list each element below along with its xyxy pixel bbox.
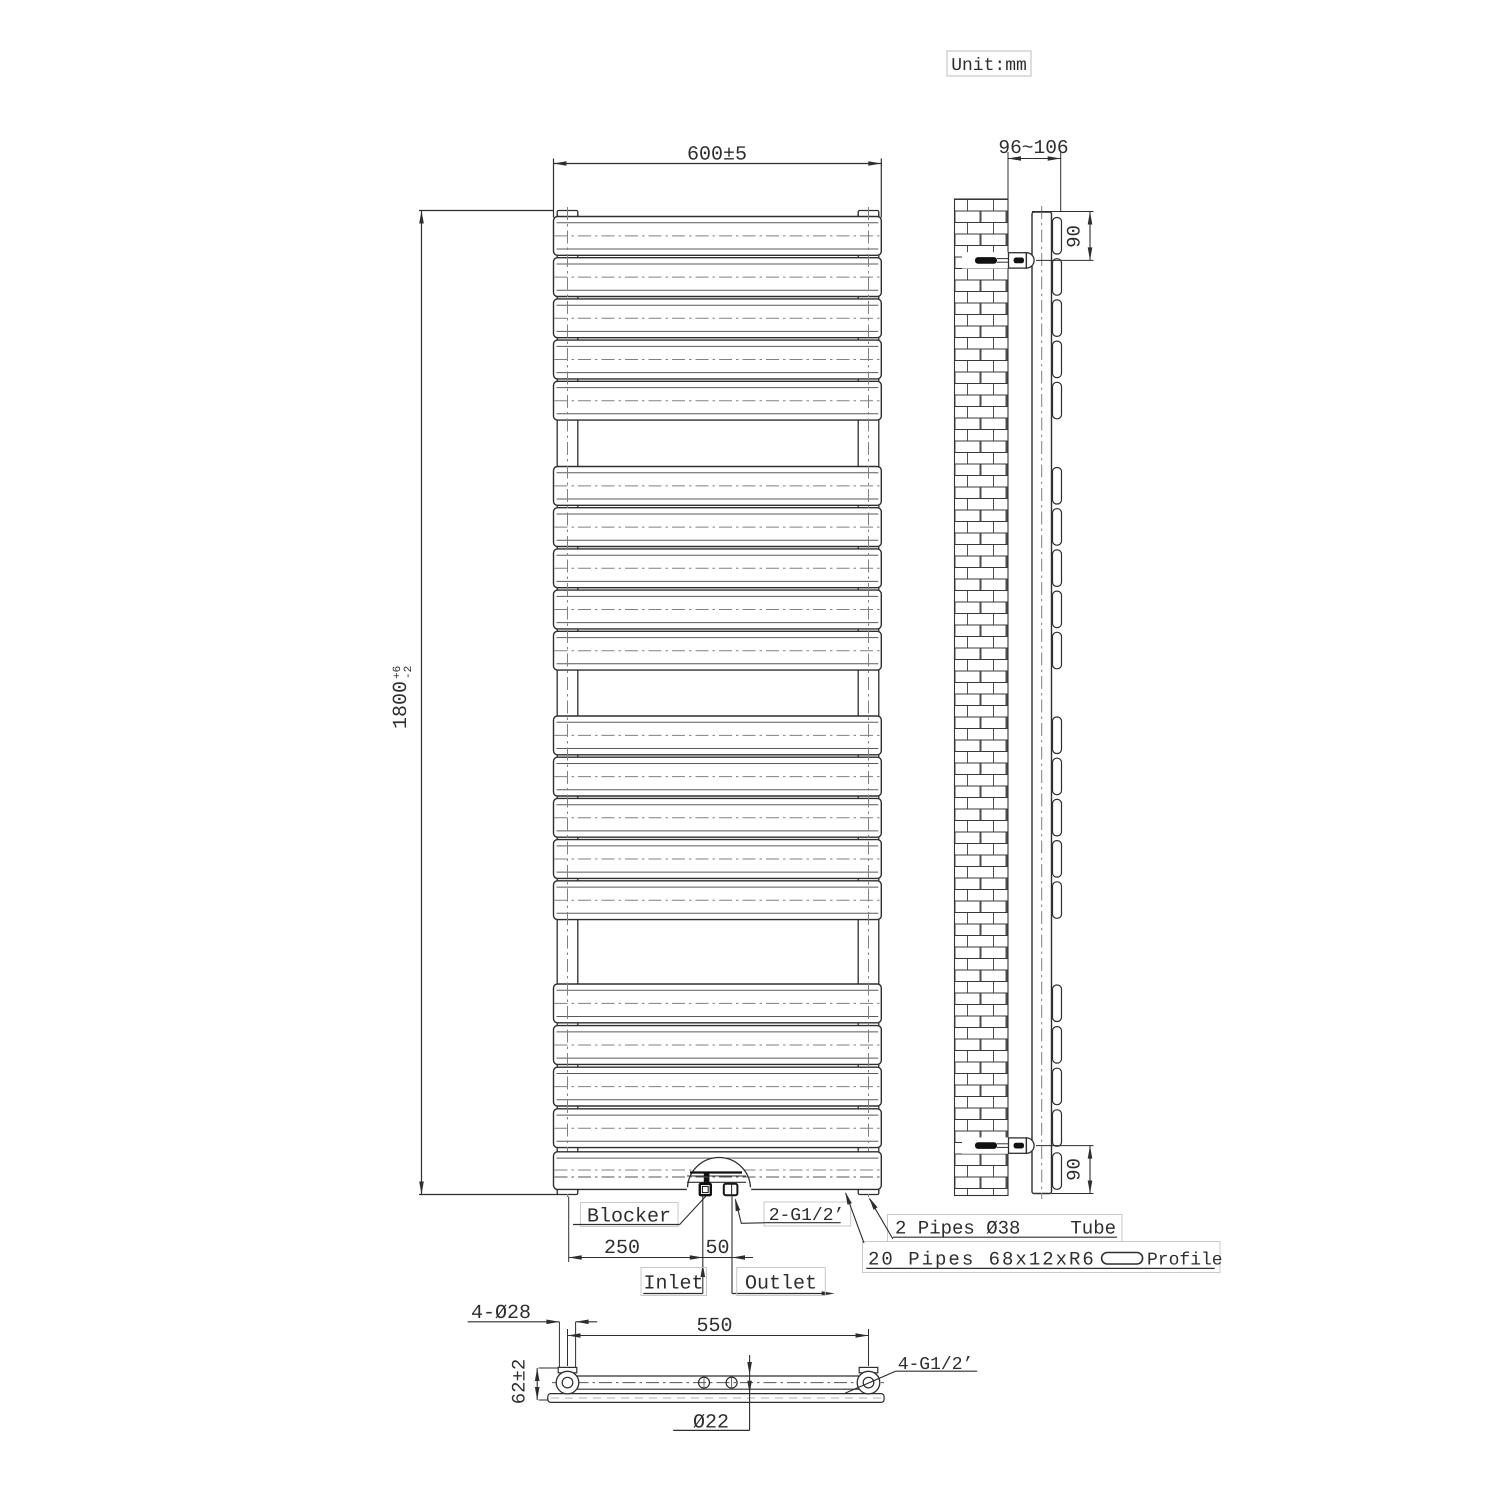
svg-text:Outlet: Outlet bbox=[745, 1273, 817, 1296]
svg-text:2 Pipes Ø38: 2 Pipes Ø38 bbox=[895, 1218, 1020, 1240]
svg-text:62±2: 62±2 bbox=[509, 1359, 531, 1405]
svg-text:600±5: 600±5 bbox=[687, 144, 747, 167]
svg-text:90: 90 bbox=[1064, 225, 1086, 248]
svg-text:550: 550 bbox=[696, 1315, 732, 1338]
svg-text:Inlet: Inlet bbox=[643, 1273, 703, 1296]
svg-text:1800: 1800 bbox=[390, 681, 413, 729]
svg-text:50: 50 bbox=[705, 1237, 729, 1260]
svg-text:4-G1/2’: 4-G1/2’ bbox=[898, 1355, 974, 1375]
svg-text:-2: -2 bbox=[403, 666, 415, 679]
svg-text:Tube: Tube bbox=[1070, 1218, 1116, 1240]
svg-text:90: 90 bbox=[1064, 1158, 1086, 1181]
svg-text:Unit:mm: Unit:mm bbox=[951, 56, 1027, 76]
svg-text:Ø22: Ø22 bbox=[693, 1412, 729, 1435]
svg-text:96~106: 96~106 bbox=[998, 137, 1068, 159]
svg-text:250: 250 bbox=[604, 1237, 640, 1260]
svg-text:Profile: Profile bbox=[1147, 1251, 1223, 1271]
svg-text:20 Pipes 68x12xR6: 20 Pipes 68x12xR6 bbox=[868, 1249, 1096, 1271]
